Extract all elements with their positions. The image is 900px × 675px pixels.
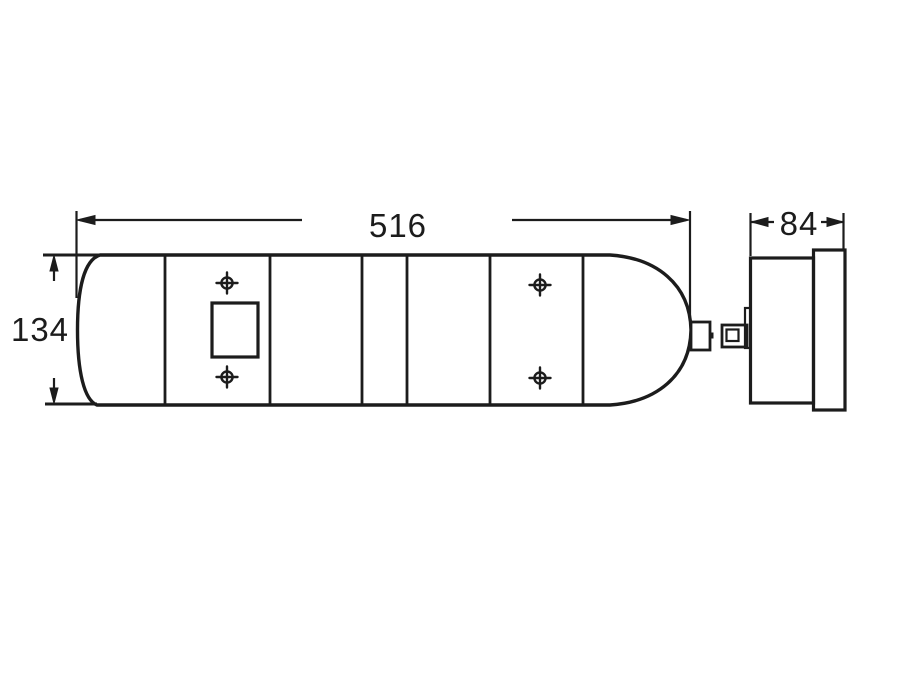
- dimension-arrow-icon: [671, 216, 689, 225]
- connector-nub-tab: [710, 333, 714, 339]
- technical-drawing-page: 516 134 84: [0, 0, 900, 675]
- plug-notch: [727, 330, 739, 342]
- connector-plug-icon: [722, 325, 747, 347]
- depth-dimension-label: 84: [780, 205, 819, 242]
- dimension-arrow-icon: [752, 218, 769, 227]
- side-view-lens-flange: [814, 250, 846, 410]
- width-dimension-label: 516: [369, 207, 427, 244]
- position-target-icon: [217, 367, 238, 388]
- dimension-depth: 84: [751, 205, 844, 256]
- position-target-icon: [530, 275, 551, 296]
- front-view-outline: [78, 255, 692, 405]
- side-view: [745, 250, 845, 410]
- dimension-arrow-icon: [77, 216, 95, 225]
- technical-drawing-canvas: 516 134 84: [0, 0, 900, 675]
- mounting-targets: [217, 273, 551, 389]
- position-target-icon: [530, 368, 551, 389]
- dimension-arrow-icon: [50, 256, 58, 272]
- height-dimension-label: 134: [11, 311, 69, 348]
- position-target-icon: [217, 273, 238, 294]
- dimension-height: 134: [11, 255, 100, 404]
- square-cutout: [212, 303, 258, 357]
- side-view-housing: [751, 258, 814, 403]
- front-view: [78, 255, 714, 405]
- dimension-arrow-icon: [827, 218, 843, 227]
- dimension-arrow-icon: [50, 388, 58, 404]
- connector-nub: [691, 322, 710, 350]
- dimension-width: 516: [77, 207, 691, 321]
